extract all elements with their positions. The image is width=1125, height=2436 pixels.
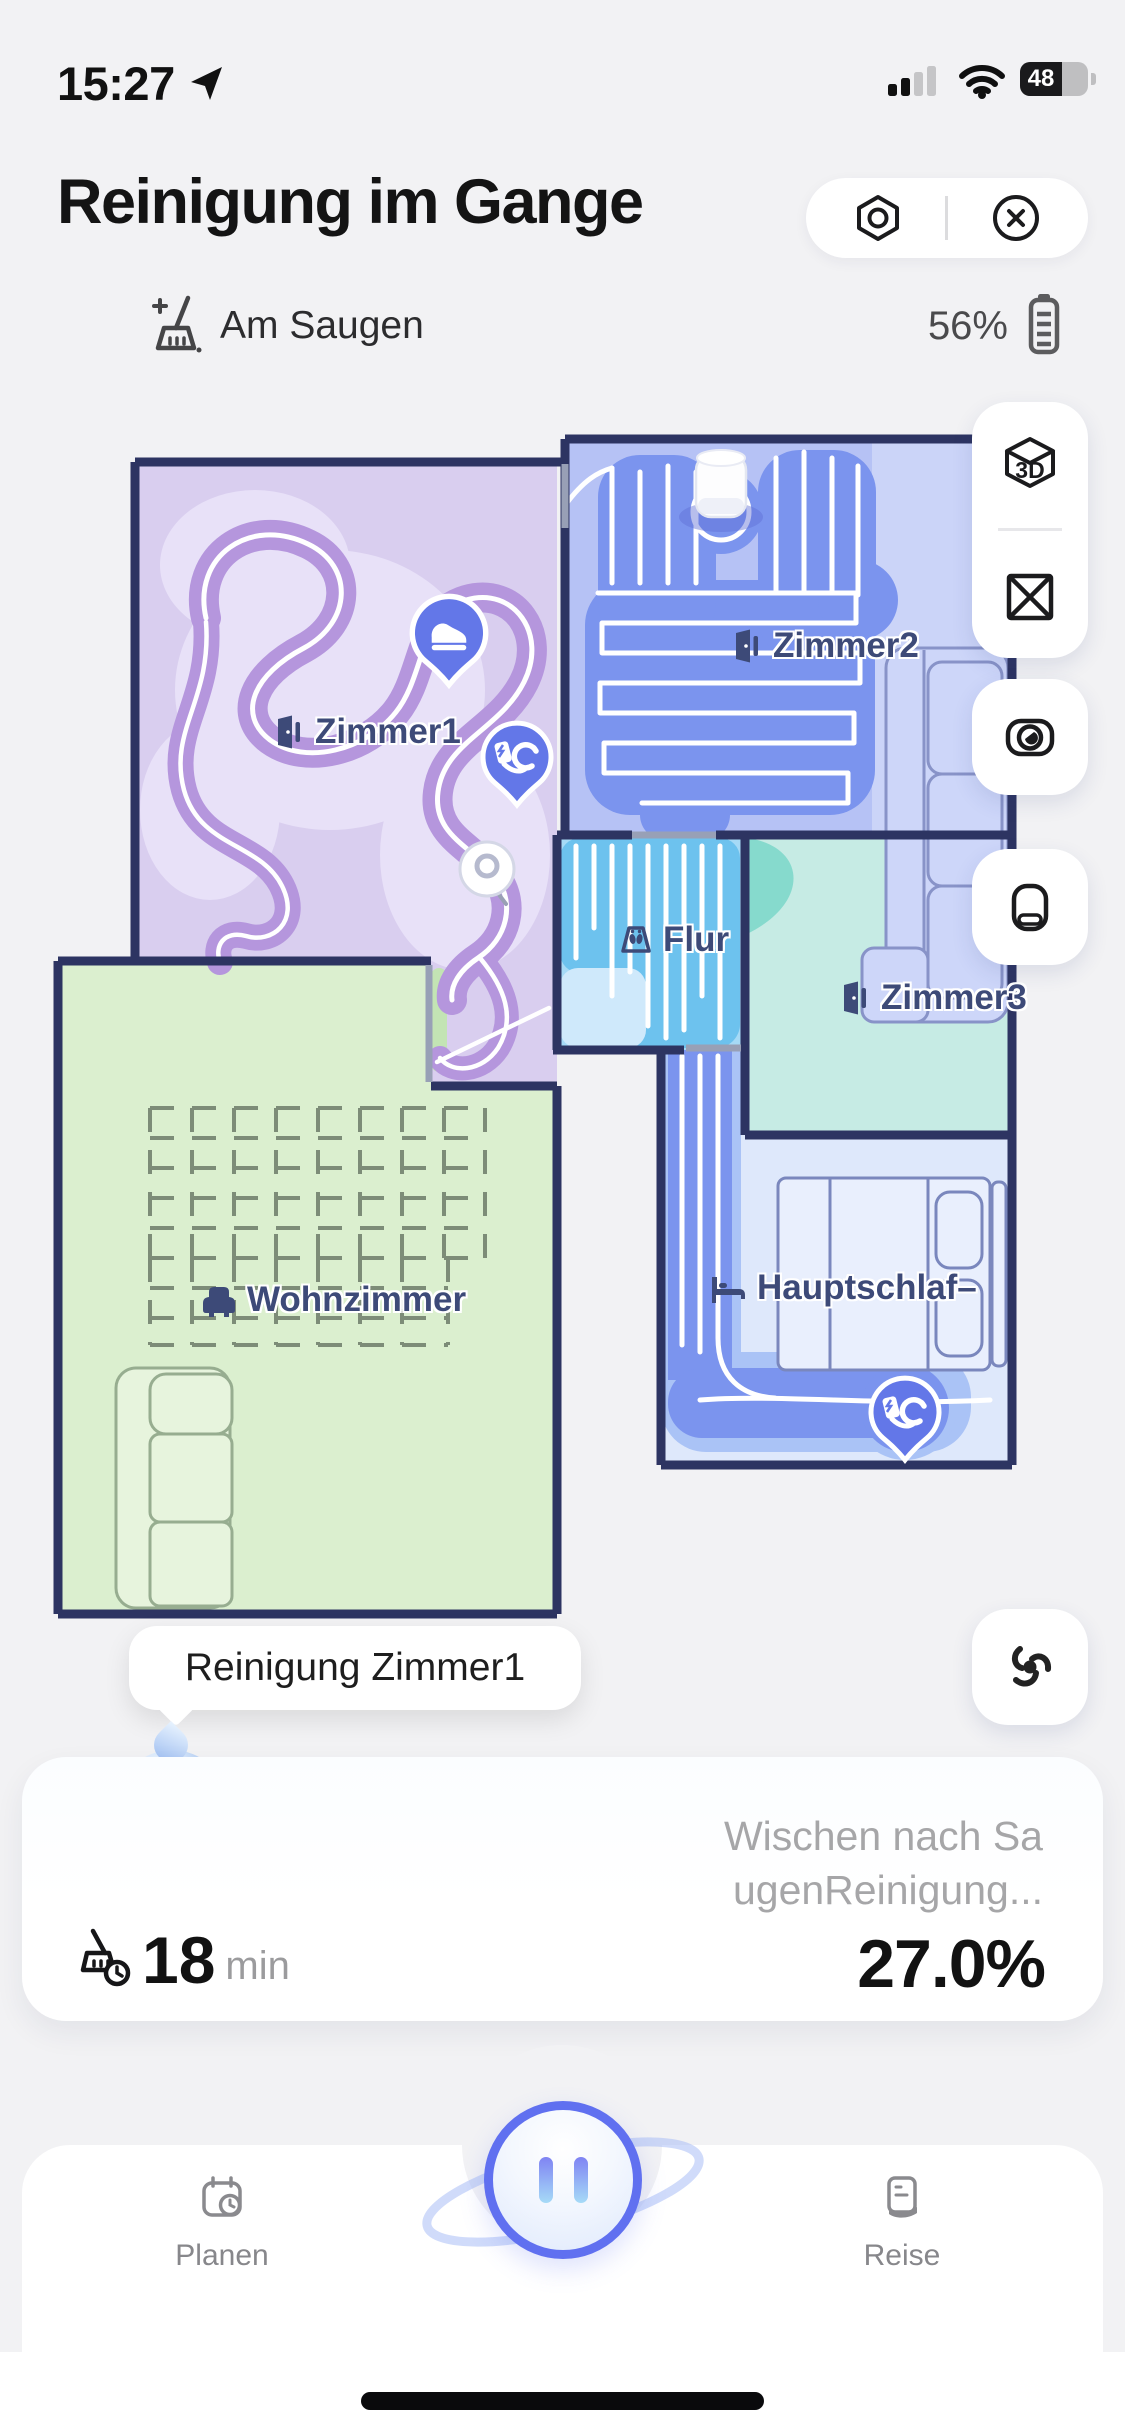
hexagon-settings-icon [852, 192, 904, 244]
room-label-text: Flur [663, 920, 729, 960]
battery-icon: 48 [1020, 62, 1088, 96]
room-label-wohnzimmer[interactable]: Wohnzimmer [200, 1280, 466, 1320]
journey-log-icon [877, 2172, 927, 2222]
tooltip-text: Reinigung Zimmer1 [185, 1646, 525, 1690]
robot-battery-icon [1020, 288, 1068, 360]
door-icon [270, 714, 306, 750]
door-icon [836, 980, 872, 1016]
room-label-zimmer2[interactable]: Zimmer2 [728, 626, 919, 666]
couch-wohnzimmer [116, 1368, 232, 1608]
page-title: Reinigung im Gange [57, 166, 643, 238]
camera-eye-icon [1001, 708, 1059, 766]
mode-line2: ugenReinigung... [724, 1863, 1043, 1917]
room-label-hauptschlafzimmer[interactable]: Hauptschlaf– [708, 1268, 977, 1308]
battery-cap [1091, 73, 1096, 85]
flur-light-patch [560, 968, 646, 1048]
tab-planen[interactable]: Planen [120, 2172, 324, 2273]
room-label-text: Zimmer2 [773, 626, 919, 666]
map-flat-icon [1001, 568, 1059, 626]
schedule-icon [197, 2172, 247, 2222]
tab-planen-label: Planen [120, 2239, 324, 2273]
doormat-icon [618, 922, 654, 958]
robot-battery-text: 56% [820, 304, 1008, 349]
view-3d-button[interactable]: 3D [1001, 434, 1059, 492]
cleaning-time-icon [76, 1925, 132, 1989]
floor-map[interactable] [0, 400, 1125, 1700]
time-value: 18 [142, 1927, 215, 1993]
room-label-text: Zimmer1 [315, 712, 461, 752]
app-screen: 15:27 48 Reinigung im Gange [0, 0, 1125, 2436]
map-view-pill: 3D [972, 402, 1088, 658]
pill-separator [998, 528, 1062, 531]
cube-3d-label: 3D [1001, 457, 1059, 484]
room-label-zimmer3[interactable]: Zimmer3 [836, 978, 1027, 1018]
header-divider [945, 196, 948, 240]
relocate-button[interactable] [972, 1609, 1088, 1725]
bed-icon [708, 1271, 748, 1305]
cellular-signal-icon [886, 64, 946, 100]
dock-station-icon [1001, 878, 1059, 936]
room-label-text: Hauptschlaf– [757, 1268, 977, 1308]
vacuum-activity-icon [146, 290, 208, 360]
pause-icon [574, 2157, 588, 2203]
header-action-pill [806, 178, 1088, 258]
pause-icon [539, 2157, 553, 2203]
room-label-flur[interactable]: Flur [618, 920, 729, 960]
mode-line1: Wischen nach Sa [724, 1809, 1043, 1863]
activity-status-text: Am Saugen [220, 304, 424, 348]
home-indicator[interactable] [361, 2392, 764, 2410]
battery-percent-text: 48 [1020, 62, 1062, 96]
camera-button[interactable] [972, 679, 1088, 795]
location-arrow-icon [186, 64, 226, 104]
map-mode-button[interactable] [1001, 568, 1059, 626]
status-time: 15:27 [57, 56, 175, 111]
tab-reise-label: Reise [800, 2239, 1004, 2273]
progress-percent: 27.0% [857, 1925, 1045, 2003]
close-icon [990, 192, 1042, 244]
task-status-card[interactable]: Wischen nach Sa ugenReinigung... 27.0% 1… [22, 1757, 1103, 2021]
wifi-icon [958, 62, 1006, 100]
time-unit: min [225, 1939, 289, 1993]
room-label-text: Zimmer3 [881, 978, 1027, 1018]
room-label-text: Wohnzimmer [247, 1280, 466, 1320]
cleaning-mode-text: Wischen nach Sa ugenReinigung... [724, 1809, 1043, 1917]
swirl-icon [1001, 1638, 1059, 1696]
door-icon [728, 628, 764, 664]
remaining-time: 18 min [76, 1925, 290, 1993]
room-label-zimmer1[interactable]: Zimmer1 [270, 712, 461, 752]
armchair-icon [200, 1282, 238, 1318]
dock-station-button[interactable] [972, 849, 1088, 965]
pause-button[interactable] [484, 2101, 642, 2259]
close-button[interactable] [990, 192, 1042, 244]
settings-button[interactable] [852, 192, 904, 244]
tab-reise[interactable]: Reise [800, 2172, 1004, 2273]
status-tooltip: Reinigung Zimmer1 [129, 1626, 581, 1710]
